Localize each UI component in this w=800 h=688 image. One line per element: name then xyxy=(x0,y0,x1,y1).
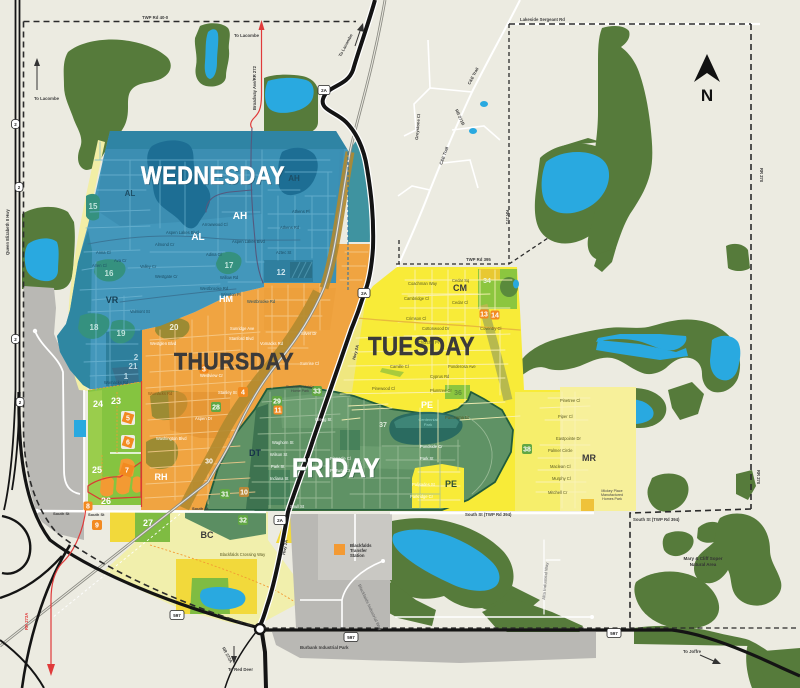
svg-text:VR: VR xyxy=(106,295,119,305)
svg-text:Queen Elizabeth II Hwy: Queen Elizabeth II Hwy xyxy=(5,208,10,255)
svg-text:To Joffre: To Joffre xyxy=(683,649,702,654)
svg-text:Burbank Industrial Park: Burbank Industrial Park xyxy=(300,645,349,650)
svg-text:Valley Cr: Valley Cr xyxy=(140,264,157,269)
svg-text:2: 2 xyxy=(134,353,139,362)
svg-text:Ava Cr: Ava Cr xyxy=(114,258,127,263)
svg-text:Cottonwood Dr: Cottonwood Dr xyxy=(422,326,450,331)
svg-text:9: 9 xyxy=(95,523,99,530)
svg-text:Anna Cl: Anna Cl xyxy=(96,250,111,255)
svg-text:30: 30 xyxy=(205,459,213,466)
svg-text:20: 20 xyxy=(170,323,179,332)
svg-text:Cedar Cl: Cedar Cl xyxy=(452,300,468,305)
svg-text:TWP Rd 395: TWP Rd 395 xyxy=(466,257,491,262)
svg-text:Cedar Sq: Cedar Sq xyxy=(452,278,470,283)
svg-text:RR 270: RR 270 xyxy=(759,168,764,183)
svg-text:RR 273A: RR 273A xyxy=(24,613,29,630)
svg-text:South St: South St xyxy=(88,512,105,517)
svg-text:7: 7 xyxy=(125,468,129,475)
svg-text:Aspen Lakes Blvd: Aspen Lakes Blvd xyxy=(232,239,265,244)
svg-text:Churchill Pl: Churchill Pl xyxy=(418,340,439,345)
svg-text:THURSDAY: THURSDAY xyxy=(174,349,294,376)
svg-text:Crimson Cl: Crimson Cl xyxy=(406,316,426,321)
svg-text:To Lacombe: To Lacombe xyxy=(34,96,60,101)
svg-text:29: 29 xyxy=(273,399,281,406)
svg-text:Almond Cr: Almond Cr xyxy=(155,242,175,247)
svg-text:Pondside Cr: Pondside Cr xyxy=(420,444,443,449)
svg-text:32: 32 xyxy=(239,518,247,525)
svg-text:34: 34 xyxy=(483,278,491,285)
svg-text:Westbrooke Rd: Westbrooke Rd xyxy=(247,299,276,304)
svg-text:Stanford Blvd: Stanford Blvd xyxy=(229,336,254,341)
svg-text:37: 37 xyxy=(379,422,387,429)
svg-text:Aspen Dr: Aspen Dr xyxy=(195,416,213,421)
svg-text:Parkridge Cr: Parkridge Cr xyxy=(410,494,434,499)
svg-text:597: 597 xyxy=(347,635,355,640)
svg-text:WEDNESDAY: WEDNESDAY xyxy=(141,162,285,190)
svg-text:Lakeside Sergeant Rd: Lakeside Sergeant Rd xyxy=(520,17,565,22)
svg-text:16: 16 xyxy=(105,269,114,278)
svg-text:BC: BC xyxy=(201,530,214,540)
svg-text:Maclean Cl: Maclean Cl xyxy=(550,464,571,469)
svg-text:25: 25 xyxy=(92,465,102,475)
svg-text:Sunridge Ave: Sunridge Ave xyxy=(230,326,255,331)
svg-text:Waghorn St: Waghorn St xyxy=(272,440,294,445)
svg-text:South St: South St xyxy=(192,506,209,511)
svg-text:11: 11 xyxy=(274,407,282,414)
svg-text:Washington Blvd: Washington Blvd xyxy=(156,436,187,441)
svg-text:Westview Cr: Westview Cr xyxy=(200,373,224,378)
svg-text:Palisades St: Palisades St xyxy=(412,482,436,487)
svg-text:597: 597 xyxy=(173,613,181,618)
svg-text:AL: AL xyxy=(125,189,136,198)
svg-text:Shull St: Shull St xyxy=(290,504,305,509)
svg-text:28: 28 xyxy=(212,405,220,412)
svg-text:5: 5 xyxy=(126,416,130,423)
svg-text:Westgate Cr: Westgate Cr xyxy=(155,274,178,279)
svg-text:Vomacks Rd: Vomacks Rd xyxy=(260,341,284,346)
svg-text:AH: AH xyxy=(288,174,300,183)
svg-text:RR 270: RR 270 xyxy=(756,470,761,485)
svg-text:Willow Rd: Willow Rd xyxy=(220,275,239,280)
svg-text:15: 15 xyxy=(89,202,98,211)
svg-text:Womacks Rd: Womacks Rd xyxy=(148,391,173,396)
svg-text:2A: 2A xyxy=(277,518,284,523)
svg-text:2A: 2A xyxy=(321,88,328,93)
svg-text:Eastpointe Dr: Eastpointe Dr xyxy=(556,436,581,441)
svg-text:Silver Dr: Silver Dr xyxy=(301,331,317,336)
svg-text:MR: MR xyxy=(582,453,596,463)
svg-text:Camille Cl: Camille Cl xyxy=(390,364,409,369)
svg-text:TWP Rd 40-0: TWP Rd 40-0 xyxy=(142,15,169,20)
svg-text:17: 17 xyxy=(225,261,234,270)
svg-text:Panorama Dr: Panorama Dr xyxy=(445,415,470,420)
svg-text:Womacks Rd: Womacks Rd xyxy=(104,380,129,385)
svg-text:RH: RH xyxy=(155,472,168,482)
svg-text:33: 33 xyxy=(313,389,321,396)
svg-text:Station: Station xyxy=(350,553,365,558)
svg-text:23: 23 xyxy=(111,396,121,406)
svg-text:Arlen Cl: Arlen Cl xyxy=(92,263,107,268)
svg-text:Aztec St: Aztec St xyxy=(276,250,292,255)
svg-text:Cambridge Cl: Cambridge Cl xyxy=(404,296,429,301)
svg-text:N: N xyxy=(701,86,713,105)
svg-text:Sunrise Cl: Sunrise Cl xyxy=(300,361,319,366)
svg-text:Westbrooke Rd: Westbrooke Rd xyxy=(200,286,229,291)
svg-text:Park: Park xyxy=(424,422,432,427)
svg-text:18: 18 xyxy=(90,323,99,332)
svg-text:27: 27 xyxy=(143,518,153,528)
svg-text:Valmont St: Valmont St xyxy=(130,309,151,314)
svg-text:31: 31 xyxy=(221,492,229,499)
svg-text:Blackfalds Crossing Way: Blackfalds Crossing Way xyxy=(220,552,266,557)
svg-text:4: 4 xyxy=(241,390,245,397)
svg-text:Broadway Ave/RR 272: Broadway Ave/RR 272 xyxy=(252,65,257,110)
svg-text:36: 36 xyxy=(454,390,462,397)
svg-text:Aspen Lakes Blvd: Aspen Lakes Blvd xyxy=(166,230,199,235)
svg-text:Indiana St: Indiana St xyxy=(270,476,289,481)
svg-text:597: 597 xyxy=(610,631,618,636)
svg-text:South St: South St xyxy=(53,511,70,516)
svg-text:Winston Pl: Winston Pl xyxy=(221,292,241,297)
svg-text:Athens Pl: Athens Pl xyxy=(292,209,310,214)
svg-text:Homes Park: Homes Park xyxy=(602,497,622,501)
svg-text:8: 8 xyxy=(86,503,90,510)
svg-text:24: 24 xyxy=(93,399,103,409)
svg-text:13: 13 xyxy=(480,311,488,318)
svg-text:Plumtree Cr: Plumtree Cr xyxy=(430,388,452,393)
svg-text:PE: PE xyxy=(421,400,433,410)
svg-text:Park St: Park St xyxy=(420,456,434,461)
svg-text:10: 10 xyxy=(240,490,248,497)
svg-text:Mitchell Cr: Mitchell Cr xyxy=(548,490,568,495)
svg-text:Stanley St: Stanley St xyxy=(218,390,238,395)
svg-text:TUESDAY: TUESDAY xyxy=(368,331,475,361)
svg-text:Piper Cl: Piper Cl xyxy=(558,414,573,419)
svg-text:26: 26 xyxy=(101,496,111,506)
svg-text:To Lacombe: To Lacombe xyxy=(234,33,260,38)
svg-text:Palmer Circle: Palmer Circle xyxy=(548,448,573,453)
svg-text:Ponderosa Ave: Ponderosa Ave xyxy=(448,364,476,369)
svg-text:19: 19 xyxy=(117,329,126,338)
svg-text:21: 21 xyxy=(129,362,138,371)
svg-text:Pinewood Cl: Pinewood Cl xyxy=(372,386,395,391)
svg-text:AH: AH xyxy=(233,211,247,222)
svg-text:South St (TWP Rd 394): South St (TWP Rd 394) xyxy=(633,517,680,522)
svg-text:Portway Cr: Portway Cr xyxy=(330,468,351,473)
svg-text:14: 14 xyxy=(491,312,499,319)
svg-text:To Red Deer: To Red Deer xyxy=(228,667,253,672)
svg-text:6: 6 xyxy=(126,440,130,447)
svg-text:Natural Area: Natural Area xyxy=(690,562,717,567)
svg-text:Coachman Way: Coachman Way xyxy=(408,281,438,286)
svg-text:Gregg St: Gregg St xyxy=(315,417,332,422)
svg-text:CM: CM xyxy=(453,283,467,293)
svg-text:South St (TWP Rd 394): South St (TWP Rd 394) xyxy=(465,512,512,517)
svg-text:Pinetree Cl: Pinetree Cl xyxy=(560,398,580,403)
svg-text:RR 271: RR 271 xyxy=(505,210,510,225)
svg-text:38: 38 xyxy=(523,447,531,454)
svg-text:Athens Rd: Athens Rd xyxy=(280,225,300,230)
svg-text:Home Park: Home Park xyxy=(291,389,309,393)
svg-text:Coventry Cl: Coventry Cl xyxy=(480,326,501,331)
svg-text:PE: PE xyxy=(445,479,457,489)
svg-text:Murphy Cl: Murphy Cl xyxy=(552,476,571,481)
svg-text:Pinnacle Cl: Pinnacle Cl xyxy=(330,456,351,461)
svg-text:2A: 2A xyxy=(361,291,368,296)
svg-text:Cyprus Rd: Cyprus Rd xyxy=(430,374,450,379)
svg-text:12: 12 xyxy=(277,268,286,277)
svg-text:Mary & Cliff Soper: Mary & Cliff Soper xyxy=(683,556,722,561)
svg-text:Arrowwood Cl: Arrowwood Cl xyxy=(202,222,228,227)
svg-text:Westglen Blvd: Westglen Blvd xyxy=(150,341,177,346)
svg-text:Adina Cl: Adina Cl xyxy=(206,252,222,257)
svg-text:DT: DT xyxy=(249,448,261,458)
svg-text:Park St: Park St xyxy=(271,464,285,469)
svg-text:Wilson St: Wilson St xyxy=(270,452,288,457)
